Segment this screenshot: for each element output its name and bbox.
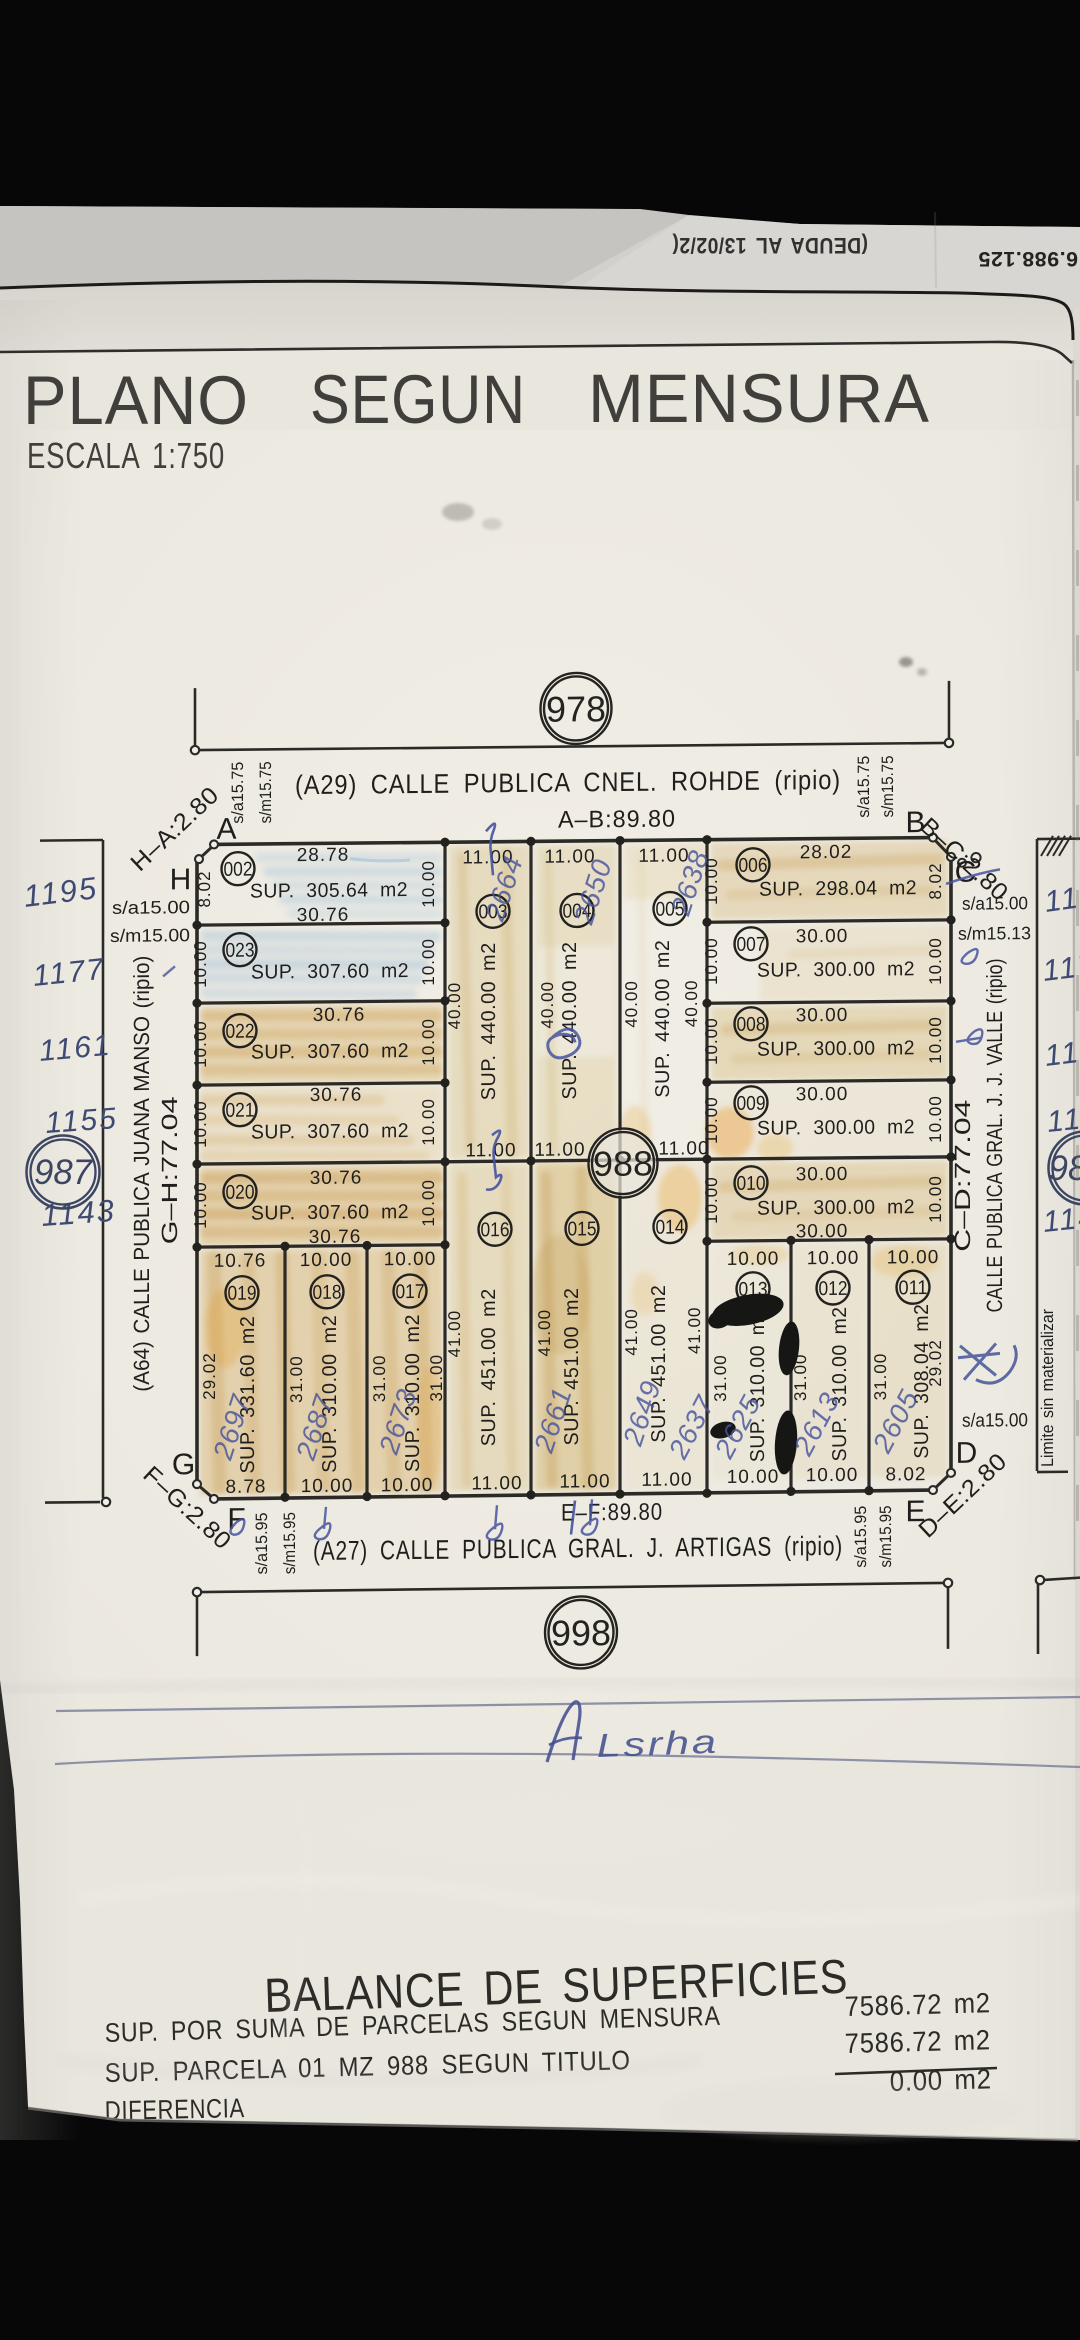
- svg-text:10.00: 10.00: [727, 1467, 780, 1489]
- svg-text:s/m15.75: s/m15.75: [257, 761, 275, 823]
- svg-text:G–H:77.04: G–H:77.04: [157, 1096, 182, 1244]
- svg-text:998: 998: [551, 1612, 611, 1654]
- svg-text:30.00: 30.00: [796, 1005, 849, 1027]
- svg-text:10.00: 10.00: [301, 1476, 354, 1498]
- svg-text:s/m15.00: s/m15.00: [110, 925, 190, 946]
- svg-text:011: 011: [898, 1277, 927, 1299]
- svg-text:002: 002: [224, 859, 253, 881]
- svg-text:29.02: 29.02: [926, 1339, 945, 1387]
- svg-text:30.00: 30.00: [796, 1164, 849, 1186]
- svg-text:10.00: 10.00: [384, 1249, 437, 1271]
- svg-text:10.00: 10.00: [926, 937, 945, 985]
- svg-text:s/a15.95: s/a15.95: [253, 1512, 271, 1574]
- svg-text:10.00: 10.00: [191, 1020, 210, 1068]
- svg-text:30.76: 30.76: [309, 1227, 362, 1249]
- svg-text:988: 988: [593, 1144, 653, 1184]
- svg-text:Limite sin materializar: Limite sin materializar: [1038, 1309, 1057, 1467]
- svg-text:31.00: 31.00: [287, 1355, 306, 1403]
- svg-text:978: 978: [546, 688, 606, 730]
- svg-text:(A64) CALLE PUBLICA JUANA MANS: (A64) CALLE PUBLICA JUANA MANSO (ripio): [129, 956, 154, 1392]
- svg-text:s/a15.00: s/a15.00: [962, 1410, 1028, 1432]
- svg-text:10.00: 10.00: [702, 1176, 721, 1224]
- svg-text:016: 016: [481, 1219, 510, 1241]
- svg-text:30.00: 30.00: [796, 1084, 849, 1106]
- svg-text:019: 019: [228, 1283, 257, 1305]
- svg-text:022: 022: [226, 1021, 255, 1043]
- svg-text:10.76: 10.76: [214, 1250, 267, 1272]
- svg-text:10.00: 10.00: [807, 1248, 860, 1270]
- svg-text:(A27) CALLE PUBLICA GRAL. J. A: (A27) CALLE PUBLICA GRAL. J. ARTIGAS (ri…: [313, 1531, 843, 1566]
- svg-text:8.78: 8.78: [226, 1476, 267, 1497]
- svg-text:10.00: 10.00: [419, 1179, 438, 1227]
- svg-text:10.00: 10.00: [702, 1017, 721, 1065]
- svg-text:008: 008: [737, 1014, 766, 1036]
- svg-text:(DEUDA AL 13/02/2(: (DEUDA AL 13/02/2(: [672, 233, 868, 258]
- svg-text:10.00: 10.00: [191, 1181, 210, 1229]
- svg-text:40.00: 40.00: [682, 979, 701, 1027]
- svg-text:SUP. 310.00 m2: SUP. 310.00 m2: [747, 1307, 769, 1462]
- svg-text:8.02: 8.02: [195, 870, 214, 907]
- svg-text:PLANO: PLANO: [23, 362, 249, 439]
- svg-text:SUP. 307.60 m2: SUP. 307.60 m2: [251, 1120, 409, 1144]
- svg-text:10.00: 10.00: [419, 1098, 438, 1146]
- svg-text:10.00: 10.00: [419, 1018, 438, 1066]
- svg-text:98: 98: [1049, 1149, 1080, 1188]
- svg-text:s/m15.95: s/m15.95: [281, 1512, 299, 1574]
- svg-text:11.00: 11.00: [465, 1140, 516, 1161]
- svg-text:29.02: 29.02: [200, 1352, 219, 1400]
- svg-text:8.02: 8.02: [926, 862, 945, 899]
- svg-text:s/a15.75: s/a15.75: [855, 756, 873, 818]
- svg-text:10.00: 10.00: [191, 1100, 210, 1148]
- svg-text:015: 015: [568, 1218, 597, 1240]
- svg-text:10.00: 10.00: [702, 1096, 721, 1144]
- svg-text:E–F:89.80: E–F:89.80: [561, 1499, 663, 1527]
- svg-text:10.00: 10.00: [926, 1016, 945, 1064]
- svg-text:s/m15.13: s/m15.13: [958, 923, 1031, 944]
- svg-text:41.00: 41.00: [535, 1309, 554, 1357]
- svg-text:006: 006: [739, 855, 768, 877]
- svg-text:SUP. 440.00 m2: SUP. 440.00 m2: [652, 940, 674, 1098]
- svg-text:1155: 1155: [44, 1102, 119, 1140]
- svg-text:014: 014: [656, 1216, 685, 1238]
- svg-text:10.00: 10.00: [381, 1475, 434, 1497]
- svg-text:11.00: 11.00: [658, 1138, 709, 1159]
- svg-text:31.00: 31.00: [711, 1354, 730, 1402]
- svg-text:007: 007: [737, 934, 766, 956]
- svg-text:G: G: [172, 1448, 196, 1481]
- svg-text:s/m15.75: s/m15.75: [879, 755, 897, 817]
- svg-text:Lsrha: Lsrha: [596, 1723, 719, 1764]
- svg-text:(A29) CALLE PUBLICA CNEL. ROHD: (A29) CALLE PUBLICA CNEL. ROHDE (ripio): [295, 765, 841, 800]
- svg-text:10.00: 10.00: [300, 1250, 353, 1272]
- svg-text:017: 017: [396, 1281, 425, 1303]
- svg-text:SUP. 298.04 m2: SUP. 298.04 m2: [759, 877, 917, 901]
- svg-text:SUP. 300.00 m2: SUP. 300.00 m2: [757, 958, 915, 982]
- svg-text:SUP. 307.60 m2: SUP. 307.60 m2: [251, 960, 409, 984]
- svg-text:31.00: 31.00: [370, 1354, 389, 1402]
- svg-text:010: 010: [737, 1173, 766, 1195]
- svg-text:30.76: 30.76: [313, 1004, 366, 1026]
- svg-text:1161: 1161: [38, 1029, 113, 1068]
- svg-text:11.00: 11.00: [534, 1139, 585, 1160]
- svg-text:C–D:77.04: C–D:77.04: [950, 1100, 975, 1252]
- svg-text:s/a15.95: s/a15.95: [852, 1506, 870, 1568]
- svg-text:021: 021: [226, 1100, 255, 1122]
- svg-text:7586.72 m2: 7586.72 m2: [844, 2024, 991, 2059]
- svg-text:1143: 1143: [40, 1193, 117, 1233]
- svg-text:40.00: 40.00: [445, 982, 464, 1030]
- svg-text:11.00: 11.00: [471, 1473, 522, 1494]
- svg-text:SEGUN: SEGUN: [310, 361, 526, 438]
- svg-text:SUP. 300.00 m2: SUP. 300.00 m2: [757, 1037, 915, 1061]
- svg-text:10.00: 10.00: [727, 1249, 780, 1271]
- svg-text:10.00: 10.00: [926, 1175, 945, 1223]
- svg-text:10.00: 10.00: [419, 860, 438, 908]
- svg-text:H: H: [170, 863, 193, 896]
- svg-text:11.00: 11.00: [641, 1469, 692, 1490]
- svg-text:10.00: 10.00: [419, 938, 438, 986]
- svg-text:018: 018: [313, 1282, 342, 1304]
- svg-text:1148: 1148: [1041, 1199, 1080, 1239]
- svg-text:SUP. 307.60 m2: SUP. 307.60 m2: [251, 1201, 409, 1225]
- svg-text:7586.72 m2: 7586.72 m2: [844, 1987, 991, 2022]
- svg-text:30.76: 30.76: [297, 905, 350, 927]
- svg-text:10.00: 10.00: [926, 1095, 945, 1143]
- svg-text:10.00: 10.00: [806, 1465, 859, 1487]
- svg-text:SUP. 451.00 m2: SUP. 451.00 m2: [478, 1288, 500, 1446]
- svg-text:30.76: 30.76: [310, 1168, 363, 1190]
- svg-text:30.76: 30.76: [310, 1085, 363, 1107]
- svg-text:SUP. 300.00 m2: SUP. 300.00 m2: [757, 1116, 915, 1140]
- svg-text:10.00: 10.00: [702, 937, 721, 985]
- svg-text:10.00: 10.00: [887, 1247, 940, 1269]
- svg-text:31.00: 31.00: [427, 1354, 446, 1402]
- svg-text:8.02: 8.02: [886, 1464, 927, 1485]
- svg-text:012: 012: [818, 1278, 847, 1300]
- svg-text:s/m15.95: s/m15.95: [877, 1505, 895, 1567]
- svg-text:A–B:89.80: A–B:89.80: [558, 806, 676, 834]
- svg-text:11.00: 11.00: [559, 1471, 610, 1492]
- svg-text:SUP. 440.00 m2: SUP. 440.00 m2: [478, 942, 500, 1100]
- svg-text:SUP. 300.00 m2: SUP. 300.00 m2: [757, 1196, 915, 1220]
- svg-text:30.00: 30.00: [796, 926, 849, 948]
- svg-text:30.00: 30.00: [796, 1221, 849, 1243]
- svg-text:SUP. 307.60 m2: SUP. 307.60 m2: [251, 1040, 409, 1064]
- svg-text:s/a15.00: s/a15.00: [112, 897, 190, 918]
- svg-text:MENSURA: MENSURA: [588, 360, 930, 437]
- svg-text:40.00: 40.00: [622, 980, 641, 1028]
- svg-text:s/a15.00: s/a15.00: [962, 893, 1028, 914]
- svg-text:28.78: 28.78: [297, 845, 350, 867]
- svg-text:CALLE PUBLICA GRAL. J. J. VALL: CALLE PUBLICA GRAL. J. J. VALLE (ripio): [982, 958, 1007, 1312]
- svg-text:SUP. 305.64 m2: SUP. 305.64 m2: [250, 879, 408, 903]
- svg-text:ESCALA 1:750: ESCALA 1:750: [27, 435, 225, 476]
- svg-text:6.988.125: 6.988.125: [978, 247, 1078, 270]
- svg-text:41.00: 41.00: [445, 1310, 464, 1358]
- svg-text:41.00: 41.00: [685, 1306, 704, 1354]
- svg-text:10.00: 10.00: [191, 940, 210, 988]
- svg-text:987: 987: [34, 1153, 94, 1192]
- svg-text:40.00: 40.00: [538, 981, 557, 1029]
- svg-text:SUP. 440.00 m2: SUP. 440.00 m2: [559, 941, 581, 1099]
- svg-text:009: 009: [737, 1093, 766, 1115]
- svg-text:SUP. 310.00 m2: SUP. 310.00 m2: [829, 1306, 851, 1461]
- svg-text:28.02: 28.02: [800, 842, 853, 864]
- svg-text:s/a15.75: s/a15.75: [229, 762, 247, 824]
- svg-text:41.00: 41.00: [622, 1308, 641, 1356]
- svg-text:31.00: 31.00: [871, 1353, 890, 1401]
- svg-text:020: 020: [226, 1182, 255, 1204]
- svg-text:023: 023: [226, 940, 255, 962]
